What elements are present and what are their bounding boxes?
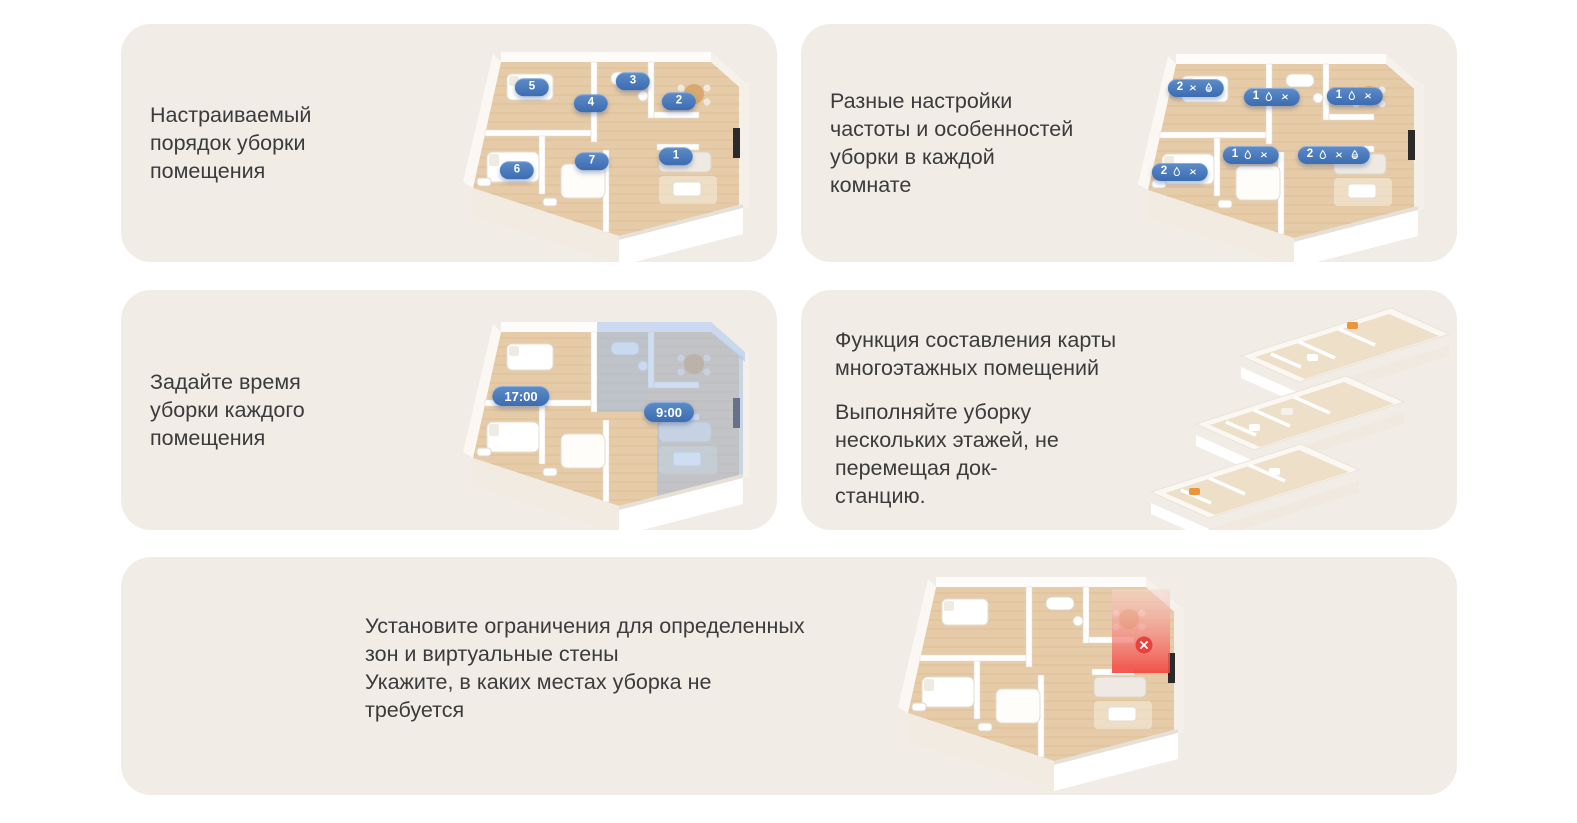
text-line: перемещая док- bbox=[835, 454, 1059, 482]
no-go-zone bbox=[1112, 589, 1170, 673]
fan-icon bbox=[1279, 91, 1291, 103]
room-badge: 1 bbox=[1327, 87, 1383, 105]
room-badge: 5 bbox=[515, 78, 549, 96]
badge-label: 9:00 bbox=[656, 406, 682, 419]
text-line: многоэтажных помещений bbox=[835, 354, 1116, 382]
badge-label: 6 bbox=[514, 164, 520, 176]
text-line: Выполняйте уборку bbox=[835, 398, 1059, 426]
floor-1 bbox=[1151, 444, 1359, 530]
card-title: Установите ограничения для определенных … bbox=[365, 612, 805, 724]
card-multi-floor-map: Функция составления карты многоэтажных п… bbox=[801, 290, 1457, 530]
fan-icon bbox=[1187, 82, 1199, 94]
text-line: помещения bbox=[150, 157, 311, 185]
room-badge: 2 bbox=[662, 92, 696, 110]
text-line: уборки каждого bbox=[150, 396, 305, 424]
badge-label: 1 bbox=[673, 150, 679, 162]
room-badge: 6 bbox=[500, 161, 534, 179]
water-drop-icon bbox=[1171, 166, 1183, 178]
water-drop-icon bbox=[1317, 149, 1329, 161]
text-line: Разные настройки bbox=[830, 87, 1073, 115]
text-line: нескольких этажей, не bbox=[835, 426, 1059, 454]
text-line: Укажите, в каких местах уборка не bbox=[365, 668, 805, 696]
multi-floor-plan-image bbox=[1151, 296, 1451, 530]
floor-plan-schedule: 17:009:00 bbox=[443, 306, 773, 530]
text-line: помещения bbox=[150, 424, 305, 452]
text-line: станцию. bbox=[835, 482, 1059, 510]
card-room-schedule: Задайте время уборки каждого помещения bbox=[121, 290, 777, 530]
floor-plan-settings: 211122 bbox=[1118, 38, 1448, 262]
card-cleaning-order: Настраиваемый порядок уборки помещения bbox=[121, 24, 777, 262]
room-badge: 3 bbox=[616, 72, 650, 90]
badge-label: 2 bbox=[1161, 166, 1167, 178]
text-line: Установите ограничения для определенных bbox=[365, 612, 805, 640]
room-badge: 4 bbox=[574, 94, 608, 112]
card-title: Разные настройки частоты и особенностей … bbox=[830, 87, 1073, 199]
badge-label: 7 bbox=[589, 155, 595, 167]
water-level-icon bbox=[1203, 82, 1215, 94]
water-drop-icon bbox=[1263, 91, 1275, 103]
fan-icon bbox=[1333, 149, 1345, 161]
badge-label: 1 bbox=[1336, 90, 1342, 102]
floor-plan-numbered: 5342716 bbox=[443, 36, 773, 262]
badge-label: 2 bbox=[676, 95, 682, 107]
time-badge: 9:00 bbox=[644, 402, 694, 422]
text-line: зон и виртуальные стены bbox=[365, 640, 805, 668]
room-badge: 1 bbox=[659, 147, 693, 165]
text-line: Функция составления карты bbox=[835, 326, 1116, 354]
fan-icon bbox=[1187, 166, 1199, 178]
badge-label: 1 bbox=[1253, 91, 1259, 103]
room-badge: 1 bbox=[1223, 146, 1279, 164]
badge-label: 17:00 bbox=[504, 390, 537, 403]
badge-label: 2 bbox=[1307, 149, 1313, 161]
card-heading: Функция составления карты многоэтажных п… bbox=[835, 326, 1116, 382]
apartment-floor-plan-image bbox=[443, 306, 773, 530]
badge-label: 5 bbox=[529, 81, 535, 93]
badge-label: 3 bbox=[630, 75, 636, 87]
text-line: Настраиваемый bbox=[150, 101, 311, 129]
text-line: частоты и особенностей bbox=[830, 115, 1073, 143]
card-per-room-settings: Разные настройки частоты и особенностей … bbox=[801, 24, 1457, 262]
text-line: требуется bbox=[365, 696, 805, 724]
room-badge: 2 bbox=[1152, 163, 1208, 181]
floor-plan-no-go bbox=[878, 561, 1208, 791]
room-badge: 1 bbox=[1244, 88, 1300, 106]
apartment-floor-plan-image bbox=[1118, 38, 1448, 262]
apartment-floor-plan-image bbox=[443, 36, 773, 262]
room-badge: 7 bbox=[575, 152, 609, 170]
water-drop-icon bbox=[1346, 90, 1358, 102]
badge-label: 4 bbox=[588, 97, 594, 109]
water-drop-icon bbox=[1242, 149, 1254, 161]
badge-label: 1 bbox=[1232, 149, 1238, 161]
product-features-page: { "page": {"language": "ru", "background… bbox=[0, 0, 1577, 823]
text-line: уборки в каждой bbox=[830, 143, 1073, 171]
card-no-go-zones: Установите ограничения для определенных … bbox=[121, 557, 1457, 795]
time-badge: 17:00 bbox=[492, 386, 549, 406]
badge-label: 2 bbox=[1177, 82, 1183, 94]
room-badge: 2 bbox=[1298, 146, 1370, 164]
text-line: Задайте время bbox=[150, 368, 305, 396]
card-title: Задайте время уборки каждого помещения bbox=[150, 368, 305, 452]
card-title: Настраиваемый порядок уборки помещения bbox=[150, 101, 311, 185]
fan-icon bbox=[1362, 90, 1374, 102]
room-badge: 2 bbox=[1168, 79, 1224, 97]
text-line: порядок уборки bbox=[150, 129, 311, 157]
apartment-floor-plan-image bbox=[878, 561, 1208, 791]
card-body: Выполняйте уборку нескольких этажей, не … bbox=[835, 398, 1059, 510]
text-line: комнате bbox=[830, 171, 1073, 199]
fan-icon bbox=[1258, 149, 1270, 161]
water-level-icon bbox=[1349, 149, 1361, 161]
stacked-floors-image bbox=[1151, 296, 1451, 530]
